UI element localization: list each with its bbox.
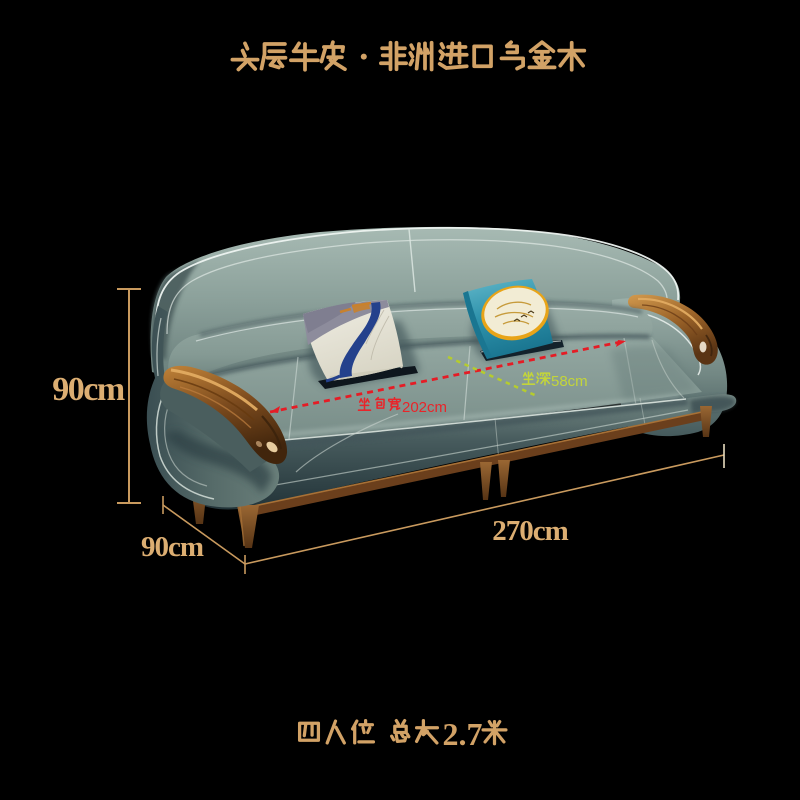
svg-text:58cm: 58cm <box>551 373 588 390</box>
svg-text:2.7: 2.7 <box>443 716 483 752</box>
svg-text:90cm: 90cm <box>141 531 204 563</box>
svg-text:202cm: 202cm <box>402 399 447 416</box>
svg-text:90cm: 90cm <box>52 371 125 408</box>
svg-text:270cm: 270cm <box>492 515 568 547</box>
